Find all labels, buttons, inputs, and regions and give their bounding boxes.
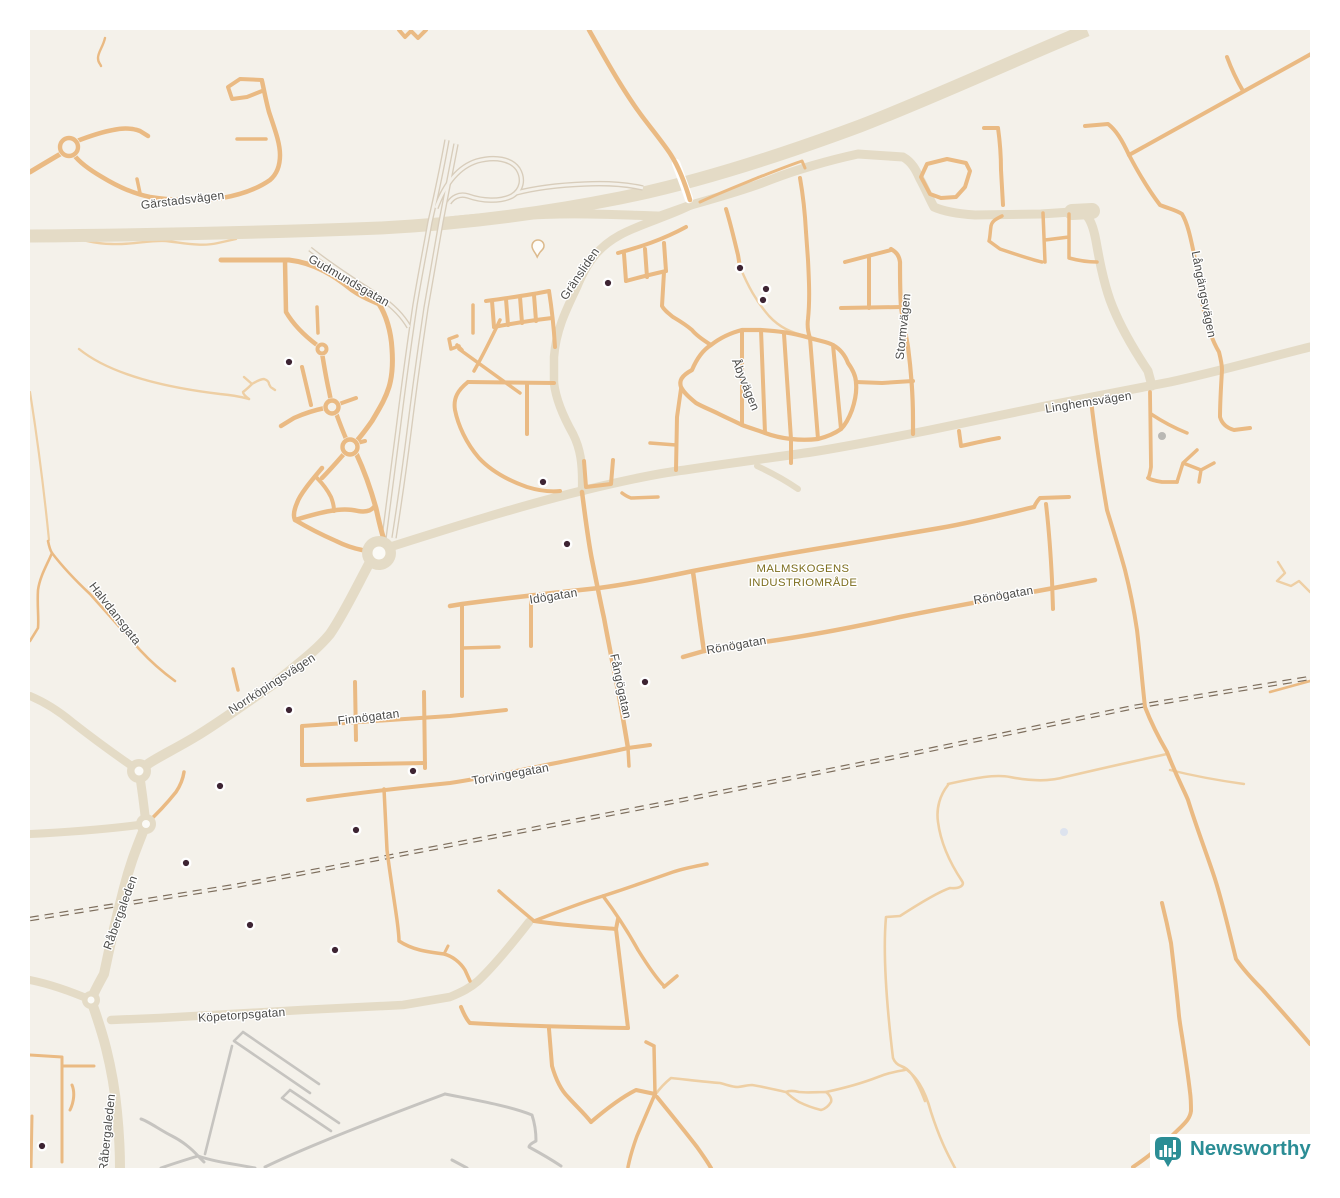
svg-text:Newsworthy: Newsworthy — [1190, 1137, 1311, 1160]
svg-text:MALMSKOGENS: MALMSKOGENS — [757, 563, 850, 575]
svg-text:INDUSTRIOMRÅDE: INDUSTRIOMRÅDE — [749, 576, 858, 589]
